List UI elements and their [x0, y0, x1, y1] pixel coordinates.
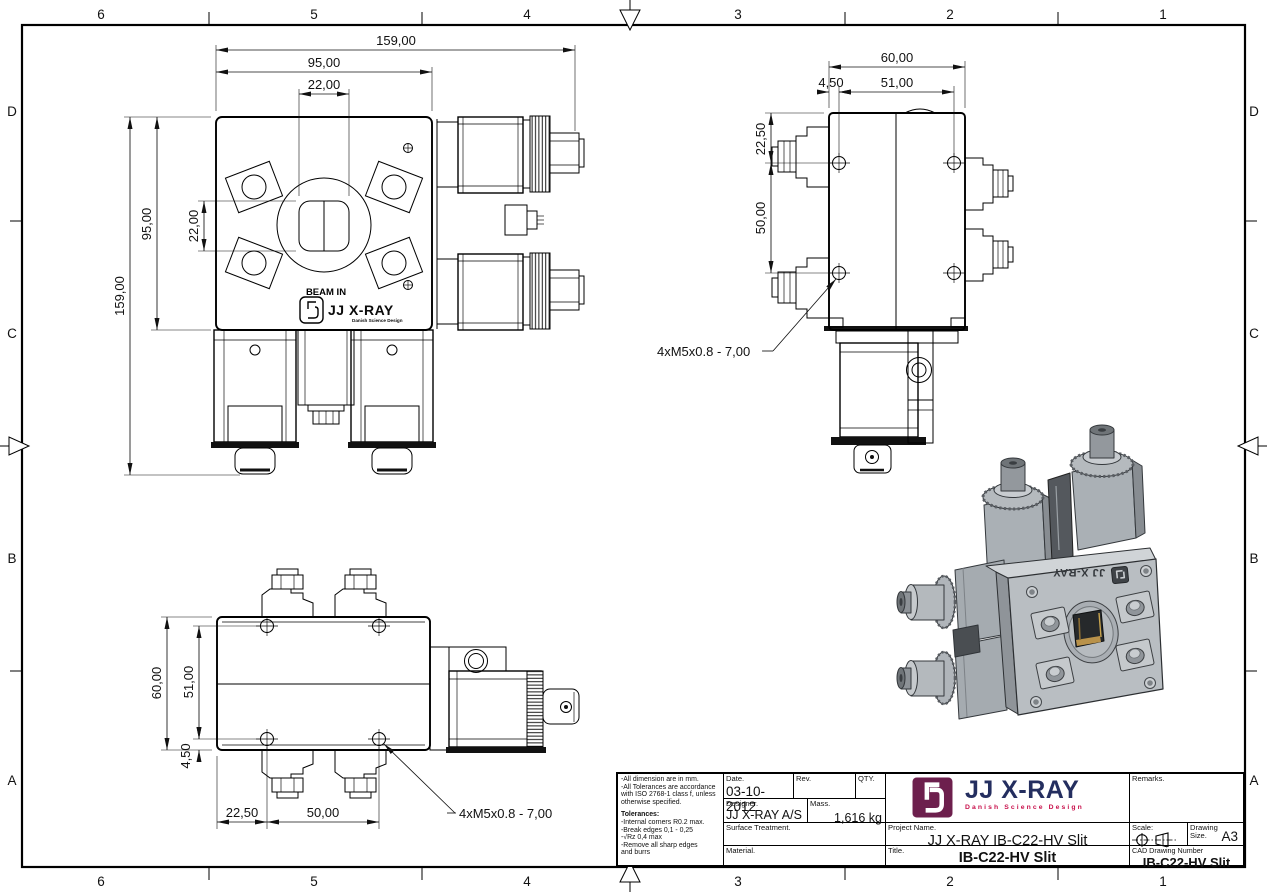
- side-dimensions: 60,00 4,50 51,00 22,50 50,00 4xM5x0.8 - …: [657, 50, 965, 359]
- grid-col-label: 1: [1159, 7, 1167, 22]
- designer-cell: Designer. JJ X-RAY A/S: [724, 799, 808, 823]
- title-block: -All dimension are in mm. -All Tolerance…: [616, 772, 1245, 867]
- project-cell: Project Name. JJ X-RAY IB-C22-HV Slit: [886, 823, 1129, 846]
- grid-row-label: B: [1249, 551, 1258, 566]
- mass-cell: Mass. 1,616 kg: [808, 799, 886, 823]
- dim-label: 60,00: [149, 667, 164, 700]
- grid-row-label: B: [7, 551, 16, 566]
- grid-col-label: 3: [734, 874, 742, 889]
- title-label: Title.: [886, 846, 904, 855]
- dim-label: 50,00: [753, 202, 768, 235]
- note-line: with ISO 2768-1 class f, unless: [621, 791, 721, 799]
- bottom-dimensions: 60,00 51,00 4,50 22,50 50,00 4xM5x0.8 - …: [149, 617, 552, 829]
- grid-col-label: 5: [310, 874, 318, 889]
- grid-col-label: 4: [523, 7, 531, 22]
- remarks-cell: Remarks.: [1129, 774, 1243, 823]
- iso-view: JJ X-RAY: [897, 425, 1163, 719]
- brand-logo-icon: [912, 777, 953, 818]
- grid-col-label: 1: [1159, 874, 1167, 889]
- left-clamp: [772, 127, 829, 187]
- note-line: -All Tolerances are accordance: [621, 784, 721, 792]
- note-line: and burrs: [621, 849, 721, 857]
- iso-center-connector: [1048, 473, 1073, 562]
- mass-label: Mass.: [808, 799, 885, 808]
- dim-label: 4,50: [178, 743, 193, 768]
- side-view: 60,00 4,50 51,00 22,50 50,00 4xM5x0.8 - …: [657, 50, 1013, 473]
- top-clamp: [262, 569, 313, 617]
- iso-brand: JJ X-RAY: [1053, 566, 1106, 578]
- bottom-motor: [211, 330, 299, 474]
- title-value: IB-C22-HV Slit: [886, 850, 1129, 866]
- grid-row-label: C: [1249, 326, 1259, 341]
- dim-label: 4,50: [818, 75, 843, 90]
- iso-left-motor: [897, 560, 1007, 643]
- cad-number-cell: CAD Drawing Number IB-C22-HV Slit: [1129, 846, 1243, 865]
- thread-note: 4xM5x0.8 - 7,00: [459, 806, 552, 821]
- grid-col-label: 6: [97, 874, 105, 889]
- engraved-brand-sub: Danish Science Design: [352, 318, 403, 323]
- side-motor: [437, 116, 584, 193]
- project-label: Project Name.: [886, 823, 1129, 832]
- qty-cell: QTY.: [856, 774, 886, 799]
- grid-col-label: 5: [310, 7, 318, 22]
- bottom-right-motor: [430, 647, 579, 753]
- brand-name: JJ X-RAY: [965, 777, 1084, 803]
- bottom-view: 60,00 51,00 4,50 22,50 50,00 4xM5x0.8 - …: [149, 569, 579, 829]
- bottom-connector: [298, 330, 354, 424]
- iso-logo-chip: [1111, 566, 1129, 584]
- title-cell: Title. IB-C22-HV Slit: [886, 846, 1129, 865]
- dim-label: 50,00: [307, 805, 340, 820]
- grid-col-label: 2: [946, 874, 954, 889]
- dim-label: 95,00: [308, 55, 341, 70]
- date-cell: Date. 03-10-2012: [724, 774, 794, 799]
- engraved-logo-icon: [300, 297, 323, 323]
- grid-row-label: C: [7, 326, 17, 341]
- drawing-sheet: { "sheet": { "grid_cols": ["6", "5", "4"…: [0, 0, 1267, 892]
- grid-col-label: 2: [946, 7, 954, 22]
- grid-row-label: A: [1249, 773, 1258, 788]
- thread-note: 4xM5x0.8 - 7,00: [657, 344, 750, 359]
- dim-label: 60,00: [881, 50, 914, 65]
- note-line: otherwise specified.: [621, 799, 721, 807]
- grid-row-label: A: [7, 773, 16, 788]
- grid-row-label: D: [7, 104, 17, 119]
- dim-label: 159,00: [376, 33, 416, 48]
- iso-gap: [953, 625, 980, 657]
- dim-label: 22,50: [753, 123, 768, 156]
- cad-value: IB-C22-HV Slit: [1130, 855, 1243, 870]
- grid-row-label: D: [1249, 104, 1259, 119]
- side-bottom-motor: [831, 331, 958, 473]
- rev-cell: Rev.: [794, 774, 856, 799]
- scale-label: Scale:: [1130, 823, 1187, 832]
- designer-value: JJ X-RAY A/S: [724, 808, 807, 822]
- grid-col-label: 3: [734, 7, 742, 22]
- brand-cell: JJ X-RAY Danish Science Design: [886, 774, 1129, 823]
- dim-label: 22,00: [186, 210, 201, 243]
- designer-label: Designer.: [724, 799, 807, 808]
- note-line: -Remove all sharp edges: [621, 842, 721, 850]
- bottom-clamp: [262, 750, 313, 798]
- scale-cell: Scale:: [1129, 823, 1187, 846]
- cad-label: CAD Drawing Number: [1130, 846, 1243, 855]
- material-cell: Material.: [724, 846, 886, 865]
- dim-label: 95,00: [139, 208, 154, 241]
- grid-col-label: 4: [523, 874, 531, 889]
- engraved-brand: JJ X-RAY: [328, 302, 394, 318]
- grid-col-label: 6: [97, 7, 105, 22]
- dim-label: 51,00: [181, 666, 196, 699]
- dim-label: 22,00: [308, 77, 341, 92]
- note-line: -All dimension are in mm.: [621, 776, 721, 784]
- drawing-canvas: 6 5 4 3 2 1 6 5 4 3 2 1 D C B A D C B A: [0, 0, 1267, 892]
- notes-cell: -All dimension are in mm. -All Tolerance…: [618, 774, 724, 865]
- grid-labels: 6 5 4 3 2 1 6 5 4 3 2 1 D C B A D C B A: [7, 7, 1259, 889]
- iso-top-motor: [1071, 425, 1145, 550]
- size-cell: Drawing Size. A3: [1187, 823, 1243, 846]
- brand-subtitle: Danish Science Design: [965, 804, 1084, 811]
- surface-cell: Surface Treatment.: [724, 823, 886, 846]
- projection-symbol-icon: [1132, 832, 1180, 847]
- note-line: -√Rz 0,4 max: [621, 834, 721, 842]
- date-label: Date.: [724, 774, 793, 783]
- dim-label: 22,50: [226, 805, 259, 820]
- size-value: A3: [1221, 829, 1238, 844]
- dim-label: 159,00: [112, 276, 127, 316]
- dim-label: 51,00: [881, 75, 914, 90]
- note-line: -Internal corners R0.2 max.: [621, 819, 721, 827]
- note-line: Tolerances:: [621, 811, 721, 819]
- right-clamp: [965, 158, 1013, 210]
- connector: [505, 205, 544, 235]
- front-view: BEAM IN JJ X-RAY Danish Science Design 1…: [112, 33, 584, 475]
